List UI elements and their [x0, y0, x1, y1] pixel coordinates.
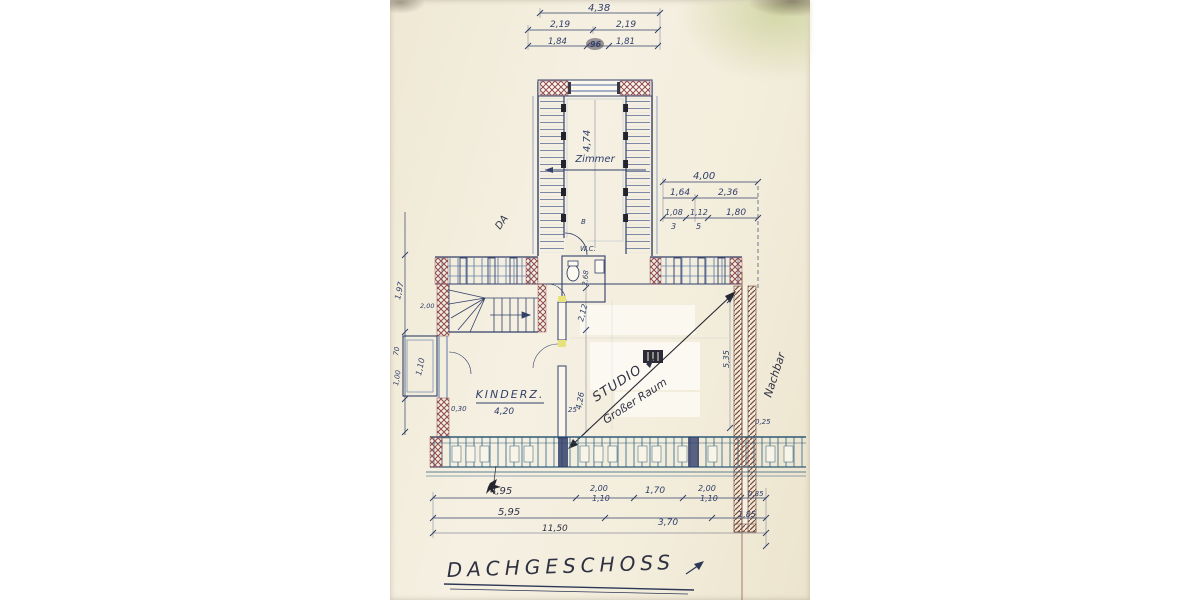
dim-ur-c-den: 3: [671, 222, 676, 231]
floor-plan-drawing: 4,38 2,19 2,19 1,84 96 1,81: [390, 0, 810, 600]
dim-left-b: 70: [392, 346, 402, 357]
neighbor-label: Nachbar: [761, 350, 788, 399]
dim-b3: 1,70: [645, 486, 665, 496]
dim-left-d: 2,00: [420, 302, 434, 310]
dim-ur-d-den: 5: [696, 222, 701, 231]
title-arrowhead: [694, 561, 704, 570]
dormer-wing: 4,74 Zimmer B: [533, 80, 657, 256]
section-mark: DA: [493, 213, 510, 231]
staircase: [449, 284, 546, 332]
left-dimension-line: 1,97 70 1,00 2,00: [392, 212, 434, 435]
scanned-floor-plan: 4,38 2,19 2,19 1,84 96 1,81: [0, 0, 1200, 600]
dim-left-c: 1,00: [392, 369, 403, 386]
dim-balcony: 1,10: [414, 357, 427, 376]
room-label-zimmer: Zimmer: [574, 154, 615, 165]
dim-studio-b: 4,26: [574, 391, 586, 410]
dim-top-c: 1,84: [548, 37, 567, 47]
dim-b4: 2,00: [698, 484, 716, 493]
studio-room: 2,12 4,26 STUDIO Großer Raum: [568, 285, 736, 449]
page-title: DACHGESCHOSS: [446, 550, 675, 582]
dim-top-b: 2,19: [616, 20, 636, 30]
dim-top-a: 2,19: [550, 20, 570, 30]
dim-top-d: 96: [590, 40, 602, 49]
top-dimension-chain: 4,38 2,19 2,19 1,84 96 1,81: [525, 3, 663, 50]
door-mark: B: [581, 218, 586, 226]
bottom-dimension-chain: 4,95 2,00 1,10 1,70 2,00 1,10 0,85 5,95 …: [430, 466, 769, 549]
dim-total: 11,50: [542, 524, 568, 534]
dim-top-total: 4,38: [588, 3, 610, 14]
title-block: DACHGESCHOSS: [444, 550, 704, 594]
dim-ur-total: 4,00: [693, 171, 715, 182]
dim-ur-c: 1,08: [665, 208, 683, 217]
dim-zimmer-depth: 4,74: [582, 130, 593, 152]
roof-slope-band: [626, 96, 650, 254]
dim-party-offset: 0,25: [755, 418, 771, 426]
room-label-wc: W.C.: [580, 245, 596, 253]
dim-c3: 1,85: [738, 510, 756, 519]
dim-top-e: 1,81: [616, 37, 635, 47]
dim-kinder-wall: 0,30: [451, 405, 467, 413]
dim-b2: 2,00: [590, 484, 608, 493]
dim-wc: 2,68: [581, 269, 590, 286]
room-label-kinder: KINDERZ.: [476, 388, 545, 401]
dim-ur-d: 1,12: [690, 208, 708, 217]
dim-left-a: 1,97: [393, 280, 406, 300]
dim-c2: 3,70: [658, 518, 678, 528]
roof-slope-band: [540, 96, 564, 254]
dim-b2w: 1,10: [592, 494, 610, 503]
drawing-sheet: 4,38 2,19 2,19 1,84 96 1,81: [390, 0, 810, 600]
dim-b4w: 1,10: [700, 494, 718, 503]
dim-c1: 5,95: [498, 507, 520, 518]
dim-ur-a: 1,64: [670, 188, 690, 198]
dim-ur-b: 2,36: [718, 188, 738, 198]
highlight-mark: [558, 340, 566, 347]
dim-b5: 0,85: [748, 490, 764, 498]
highlight-mark: [558, 296, 566, 302]
sink: [595, 260, 604, 273]
dim-kinder-width: 4,20: [494, 407, 514, 417]
whiteout-patch: [580, 305, 695, 335]
toilet: [567, 265, 579, 281]
dim-party-depth: 5,35: [722, 350, 731, 368]
dim-ur-e: 1,80: [726, 208, 746, 218]
